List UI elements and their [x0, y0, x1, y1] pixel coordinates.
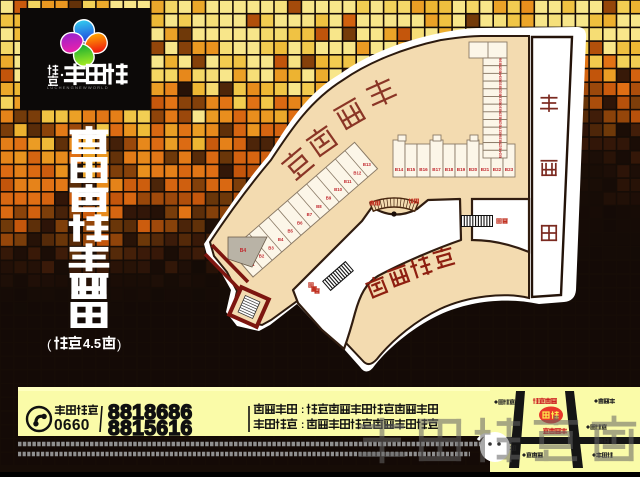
svg-text:B12: B12	[353, 170, 361, 175]
svg-text:B4: B4	[278, 237, 284, 242]
svg-text:B4: B4	[240, 248, 247, 254]
svg-text:B24: B24	[498, 150, 503, 158]
svg-text:B10: B10	[334, 187, 342, 192]
svg-text:B16: B16	[419, 167, 428, 172]
svg-text:B29: B29	[498, 111, 503, 119]
svg-text:B20: B20	[469, 167, 478, 172]
svg-text:(: (	[47, 337, 52, 352]
svg-text:B32: B32	[498, 88, 503, 96]
svg-text:B26: B26	[498, 134, 503, 142]
svg-text:B30: B30	[498, 104, 503, 112]
svg-text:B22: B22	[493, 167, 502, 172]
svg-text:B6: B6	[297, 220, 303, 225]
svg-text:B28: B28	[498, 119, 503, 127]
svg-text:B3: B3	[268, 245, 274, 250]
svg-text:B5: B5	[287, 229, 293, 234]
svg-text::: :	[301, 405, 304, 416]
svg-text:B33: B33	[498, 80, 503, 88]
svg-text:B14: B14	[395, 167, 404, 172]
svg-text::: :	[301, 420, 304, 431]
svg-text:4.5: 4.5	[83, 336, 101, 351]
svg-text:B34: B34	[498, 73, 503, 81]
svg-text:LUCHENGNEWWORLD: LUCHENGNEWWORLD	[47, 85, 109, 90]
svg-text:B19: B19	[457, 167, 466, 172]
svg-text:B25: B25	[498, 142, 503, 150]
svg-text:B8: B8	[316, 204, 322, 209]
svg-text:B13: B13	[363, 162, 371, 167]
svg-text:0660: 0660	[54, 417, 90, 434]
svg-text:B31: B31	[498, 96, 503, 104]
svg-text:): )	[117, 337, 121, 352]
svg-text:B21: B21	[481, 167, 490, 172]
svg-text:B17: B17	[432, 167, 441, 172]
svg-text:B15: B15	[407, 167, 416, 172]
svg-text:B23: B23	[505, 167, 514, 172]
svg-text:B11: B11	[344, 179, 352, 184]
svg-text:B18: B18	[445, 167, 454, 172]
svg-text:B2: B2	[259, 254, 265, 259]
svg-text:8815616: 8815616	[108, 417, 193, 440]
svg-text:B35: B35	[498, 65, 503, 73]
svg-text:B7: B7	[307, 212, 313, 217]
svg-text:B27: B27	[498, 127, 503, 135]
svg-text:B36: B36	[498, 57, 503, 65]
svg-text:B9: B9	[326, 195, 332, 200]
